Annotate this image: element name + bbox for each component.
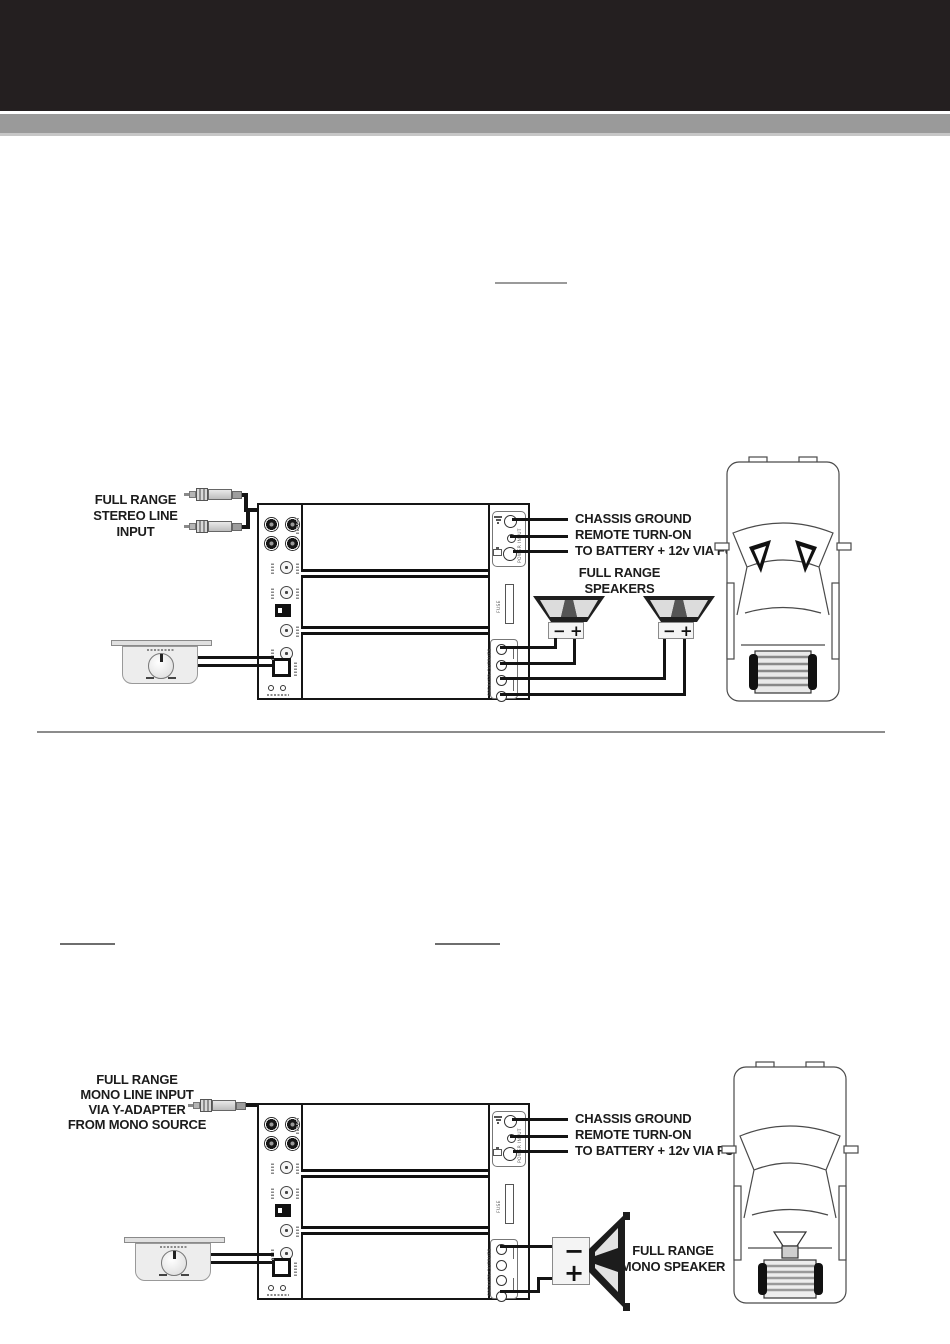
micro-text-mark [147,649,175,651]
remote-cable [198,664,274,667]
right-speaker-icon [643,596,715,623]
speaker-wire [554,638,557,649]
stereo-input-label-line1: FULL RANGE [83,492,188,508]
remote-level-jack [272,658,291,677]
remote-cable [211,1253,274,1256]
fuse-holder [505,1184,514,1224]
fuse-micro-label: FUSE [498,593,503,613]
leader-line [510,535,568,538]
crossover-knob-icon [280,1186,293,1199]
micro-text-mark [267,1294,289,1296]
input-wire [246,510,250,529]
speaker-wire [500,1245,552,1248]
speaker-wire [500,1290,540,1293]
battery-nub [496,1147,499,1149]
micro-text-mark [296,1187,299,1199]
rca-plug-mono-icon [188,1099,248,1112]
micro-text-mark [296,625,299,637]
rca-collar [196,488,208,501]
micro-text-mark [267,694,289,696]
ground-bar [497,522,499,524]
rca-barrel [208,489,232,500]
micro-text-mark [296,1225,299,1237]
micro-text-mark [294,1262,297,1276]
speaker-outputs-micro-label: SPEAKER OUTPUTS [489,1244,494,1296]
mirror-left [722,1146,736,1153]
battery-nub [496,547,499,549]
windshield [733,523,833,567]
left-speaker-icon [533,596,605,623]
amp-heatsink-fin [301,626,488,635]
right-speaker-terminals: − + [658,622,694,639]
line-out-jack [268,685,274,691]
ground-bar [497,1122,499,1124]
stereo-input-label-line2: STEREO LINE [83,508,188,524]
rca-input-jack [285,536,300,551]
trunk-amplifier-icon [758,1260,823,1298]
crossover-knob-icon [280,586,293,599]
rca-input-jack [264,517,279,532]
side-pillar-left [734,1186,741,1260]
rca-tip [189,523,196,530]
amp-panel-divider [301,505,303,698]
ground-terminal [504,515,517,528]
plus-terminal-label: + [564,1262,584,1284]
rca-input-jack [285,1136,300,1151]
battery-symbol-icon [493,1149,502,1156]
gain-knob-icon [280,1161,293,1174]
full-range-speakers-line1: FULL RANGE [552,565,687,581]
speaker-nub [623,1212,630,1220]
stereo-input-label-line3: INPUT [83,524,188,540]
minus-terminal-label: − [553,624,566,638]
rca-plug-right-icon [184,520,244,533]
leader-line [513,1150,568,1153]
gain-knob-icon [280,561,293,574]
micro-text-mark [271,1162,274,1174]
remote-level-jack [272,1258,291,1277]
leader-line [512,1118,568,1121]
amplifier-top-view: POWER INPUT FUSE SPEAKER OUTPUTS [257,1103,530,1300]
micro-text-mark [296,562,299,574]
leader-line [513,550,568,553]
section-heading-rule [435,943,500,945]
micro-text-mark [271,562,274,574]
bass-eq-knob-icon [280,624,293,637]
fuse-micro-label: FUSE [498,1193,503,1213]
amp-panel-divider [301,1105,303,1298]
rca-barrel [208,521,232,532]
mirror-left [715,543,729,550]
switch-notch [278,1208,282,1213]
mono-speaker-terminals: − + [552,1237,590,1285]
section-heading-rule [60,943,115,945]
amp-heatsink-fin [301,1226,488,1235]
remote-cable [198,656,274,659]
knob-tick [159,1274,167,1276]
speaker-wire [500,662,576,665]
speaker-wire [573,639,576,665]
chassis-ground-label: CHASSIS GROUND [575,511,691,527]
section-heading-rule [495,282,567,284]
header-band [0,0,950,111]
rca-tip [193,1102,200,1109]
micro-text-mark [271,1187,274,1199]
leader-line [512,518,568,521]
rca-collar [200,1099,212,1112]
speaker-output-terminal [496,1260,507,1271]
micro-text-mark [294,662,297,676]
rca-barrel [212,1100,236,1111]
power-input-micro-label: POWER INPUT [519,1119,524,1163]
micro-text-mark [160,1246,188,1248]
side-pillar-right [832,583,839,659]
vehicle-top-view-stereo [713,455,853,710]
stereo-input-label: FULL RANGE STEREO LINE INPUT [83,492,188,540]
speaker-wire [683,639,686,696]
mono-input-label-line1: FULL RANGE [62,1072,212,1087]
rca-input-jack [264,1117,279,1132]
speaker-output-terminal [496,1275,507,1286]
plus-terminal-label: + [680,624,693,638]
ground-symbol-icon [494,516,502,523]
ground-symbol-icon [494,1116,502,1123]
manual-page: FULL RANGE STEREO LINE INPUT [0,0,950,1344]
knob-tick [146,677,154,679]
vehicle-top-view-mono [720,1060,860,1312]
micro-text-mark [271,587,274,599]
amp-heatsink-fin [301,569,488,578]
bass-eq-knob-icon [280,1224,293,1237]
rca-plug-left-icon [184,488,244,501]
remote-turn-on-label: REMOTE TURN-ON [575,1127,691,1143]
knob-tick [168,677,176,679]
ground-bar [496,519,501,521]
line-out-jack [280,1285,286,1291]
micro-text-mark [296,1118,299,1134]
speaker-outputs-micro-label: SPEAKER OUTPUTS [489,644,494,696]
knob-pointer [160,654,163,662]
rca-collar [196,520,208,533]
ground-bar [494,1116,502,1118]
amplifier-top-view: POWER INPUT FUSE SPEAKER OUTPUTS [257,503,530,700]
switch-notch [278,608,282,613]
line-out-jack [268,1285,274,1291]
speaker-nub [623,1303,630,1311]
rca-tip [189,491,196,498]
micro-text-mark [296,1162,299,1174]
micro-text-mark [296,587,299,599]
leader-line [510,1135,568,1138]
speaker-wire [500,693,686,696]
crossover-switch-icon [275,1204,291,1217]
speaker-wire [500,677,666,680]
knob-tick [181,1274,189,1276]
mirror-right [837,543,851,550]
trunk-amplifier-icon [749,651,817,693]
header-gray-band-edge [0,133,950,136]
rca-rear [232,491,242,499]
rca-input-jack [264,1136,279,1151]
micro-text-mark [296,518,299,534]
mono-input-label-line4: FROM MONO SOURCE [62,1117,212,1132]
power-input-micro-label: POWER INPUT [519,519,524,563]
chassis-ground-label: CHASSIS GROUND [575,1111,691,1127]
rca-rear [236,1102,246,1110]
speaker-wire [500,646,557,649]
remote-cable [211,1261,274,1264]
rca-rear [232,523,242,531]
line-out-jack [280,685,286,691]
left-speaker-terminals: − + [548,622,584,639]
amp-heatsink-fin [301,1169,488,1178]
mono-speaker-label-line1: FULL RANGE [613,1243,733,1259]
side-pillar-left [727,583,734,659]
battery-symbol-icon [493,549,502,556]
side-pillar-right [839,1186,846,1260]
mirror-right [844,1146,858,1153]
ground-terminal [504,1115,517,1128]
header-gray-band [0,114,950,133]
plus-terminal-label: + [570,624,583,638]
full-range-speakers-line2: SPEAKERS [552,581,687,597]
crossover-switch-icon [275,604,291,617]
speaker-wire [663,639,666,680]
section-divider-rule [37,731,885,733]
fuse-holder [505,584,514,624]
knob-pointer [173,1251,176,1259]
ground-bar [496,1119,501,1121]
full-range-speakers-label: FULL RANGE SPEAKERS [552,565,687,597]
rca-input-jack [264,536,279,551]
full-range-mono-speaker-label: FULL RANGE MONO SPEAKER [613,1243,733,1275]
ground-bar [494,516,502,518]
minus-terminal-label: − [663,624,676,638]
mono-speaker-label-line2: MONO SPEAKER [613,1259,733,1275]
windshield [740,1126,840,1170]
remote-turn-on-label: REMOTE TURN-ON [575,527,691,543]
